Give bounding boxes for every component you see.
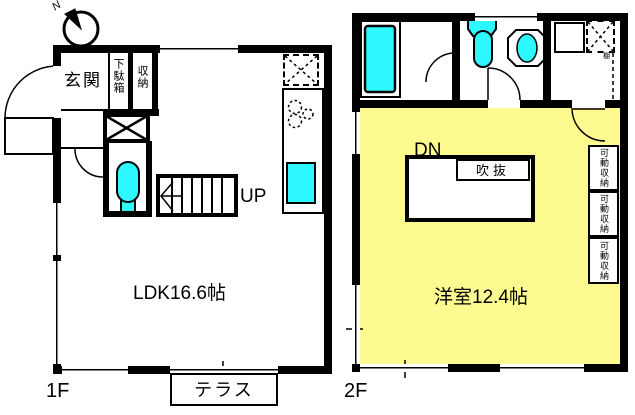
floor1-label: 1F xyxy=(46,381,69,401)
washbasin-icon xyxy=(508,30,546,66)
window xyxy=(500,364,584,372)
floor2-label: 2F xyxy=(344,381,367,401)
wall-segment xyxy=(103,211,152,217)
wall-segment xyxy=(152,53,158,116)
entrance-porch xyxy=(4,117,54,155)
storage-label: 収納 xyxy=(136,65,147,89)
shelf-label: 棚 xyxy=(603,53,610,60)
closet-x-box xyxy=(103,113,150,143)
window xyxy=(62,366,128,374)
washroom-counter-line xyxy=(401,20,452,22)
terrace-label: テラス xyxy=(194,381,254,399)
entrance-label: 玄関 xyxy=(64,72,102,89)
wall-segment xyxy=(146,141,152,217)
kitchen-counter xyxy=(282,88,324,214)
void-label: 吹抜 xyxy=(476,164,510,177)
wall-segment xyxy=(108,53,110,111)
wall-segment xyxy=(620,13,628,372)
toilet-door-arc xyxy=(488,68,520,100)
void-box: 吹抜 xyxy=(456,159,530,181)
movable-storage-label: 可動収納 xyxy=(599,241,608,281)
wall-segment xyxy=(61,147,75,149)
movable-storage-box: 可動収納 xyxy=(588,191,619,237)
bathroom-box xyxy=(360,20,401,98)
ldk-label: LDK16.6帖 xyxy=(133,284,226,303)
terrace-box: テラス xyxy=(170,373,278,406)
wall-segment xyxy=(605,100,628,108)
window xyxy=(352,285,360,364)
hall-door-arc xyxy=(75,148,103,177)
wall-segment xyxy=(352,100,488,108)
floorplan-canvas: テラス 吹抜 可動収納 可動収納 可動収納 N 玄関 下駄箱 収納 UP LDK… xyxy=(0,0,635,415)
toilet-icon-2f xyxy=(468,20,496,67)
shoe-cabinet-label: 下駄箱 xyxy=(112,58,123,94)
wall-segment xyxy=(543,13,551,108)
window xyxy=(53,203,61,255)
movable-storage-label: 可動収納 xyxy=(599,148,608,188)
wall-segment xyxy=(128,53,133,111)
wall-segment xyxy=(452,13,460,108)
stairs-1f-box xyxy=(156,174,238,217)
washer-space xyxy=(554,22,585,53)
window xyxy=(53,261,61,364)
window xyxy=(352,112,360,154)
shelf-space xyxy=(586,20,615,53)
fridge-space xyxy=(283,54,319,86)
wall-segment xyxy=(324,45,332,374)
movable-storage-box: 可動収納 xyxy=(588,237,619,284)
movable-storage-box: 可動収納 xyxy=(588,145,619,191)
stairs-down-label: DN xyxy=(414,141,441,160)
compass-icon xyxy=(64,9,98,46)
window xyxy=(160,45,238,53)
wall-segment xyxy=(103,141,109,217)
entrance-door-arc xyxy=(5,66,57,118)
washroom-door-arc xyxy=(426,53,455,82)
toilet-icon-1f xyxy=(117,162,139,213)
entrance-step-line xyxy=(61,109,108,111)
window xyxy=(360,364,448,372)
storage-room-door-arc xyxy=(572,108,605,141)
stairs-up-label: UP xyxy=(240,187,266,206)
door-opening xyxy=(53,66,61,118)
window xyxy=(475,13,537,21)
movable-storage-label: 可動収納 xyxy=(599,194,608,234)
western-room-label: 洋室12.4帖 xyxy=(434,288,528,307)
